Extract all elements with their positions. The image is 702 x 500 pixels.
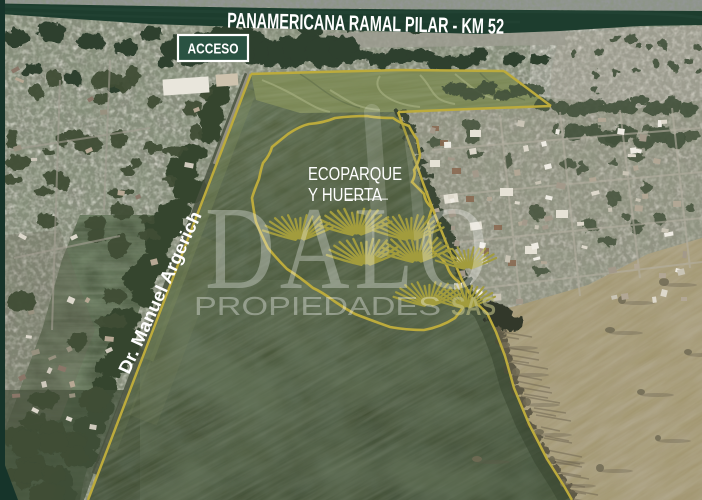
svg-text:PROPIEDADES: PROPIEDADES	[194, 291, 441, 321]
svg-text:ECOPARQUE: ECOPARQUE	[308, 164, 402, 184]
svg-text:SAS: SAS	[451, 291, 496, 321]
svg-text:ACCESO: ACCESO	[188, 41, 239, 58]
svg-text:Y HUERTA: Y HUERTA	[308, 185, 382, 205]
